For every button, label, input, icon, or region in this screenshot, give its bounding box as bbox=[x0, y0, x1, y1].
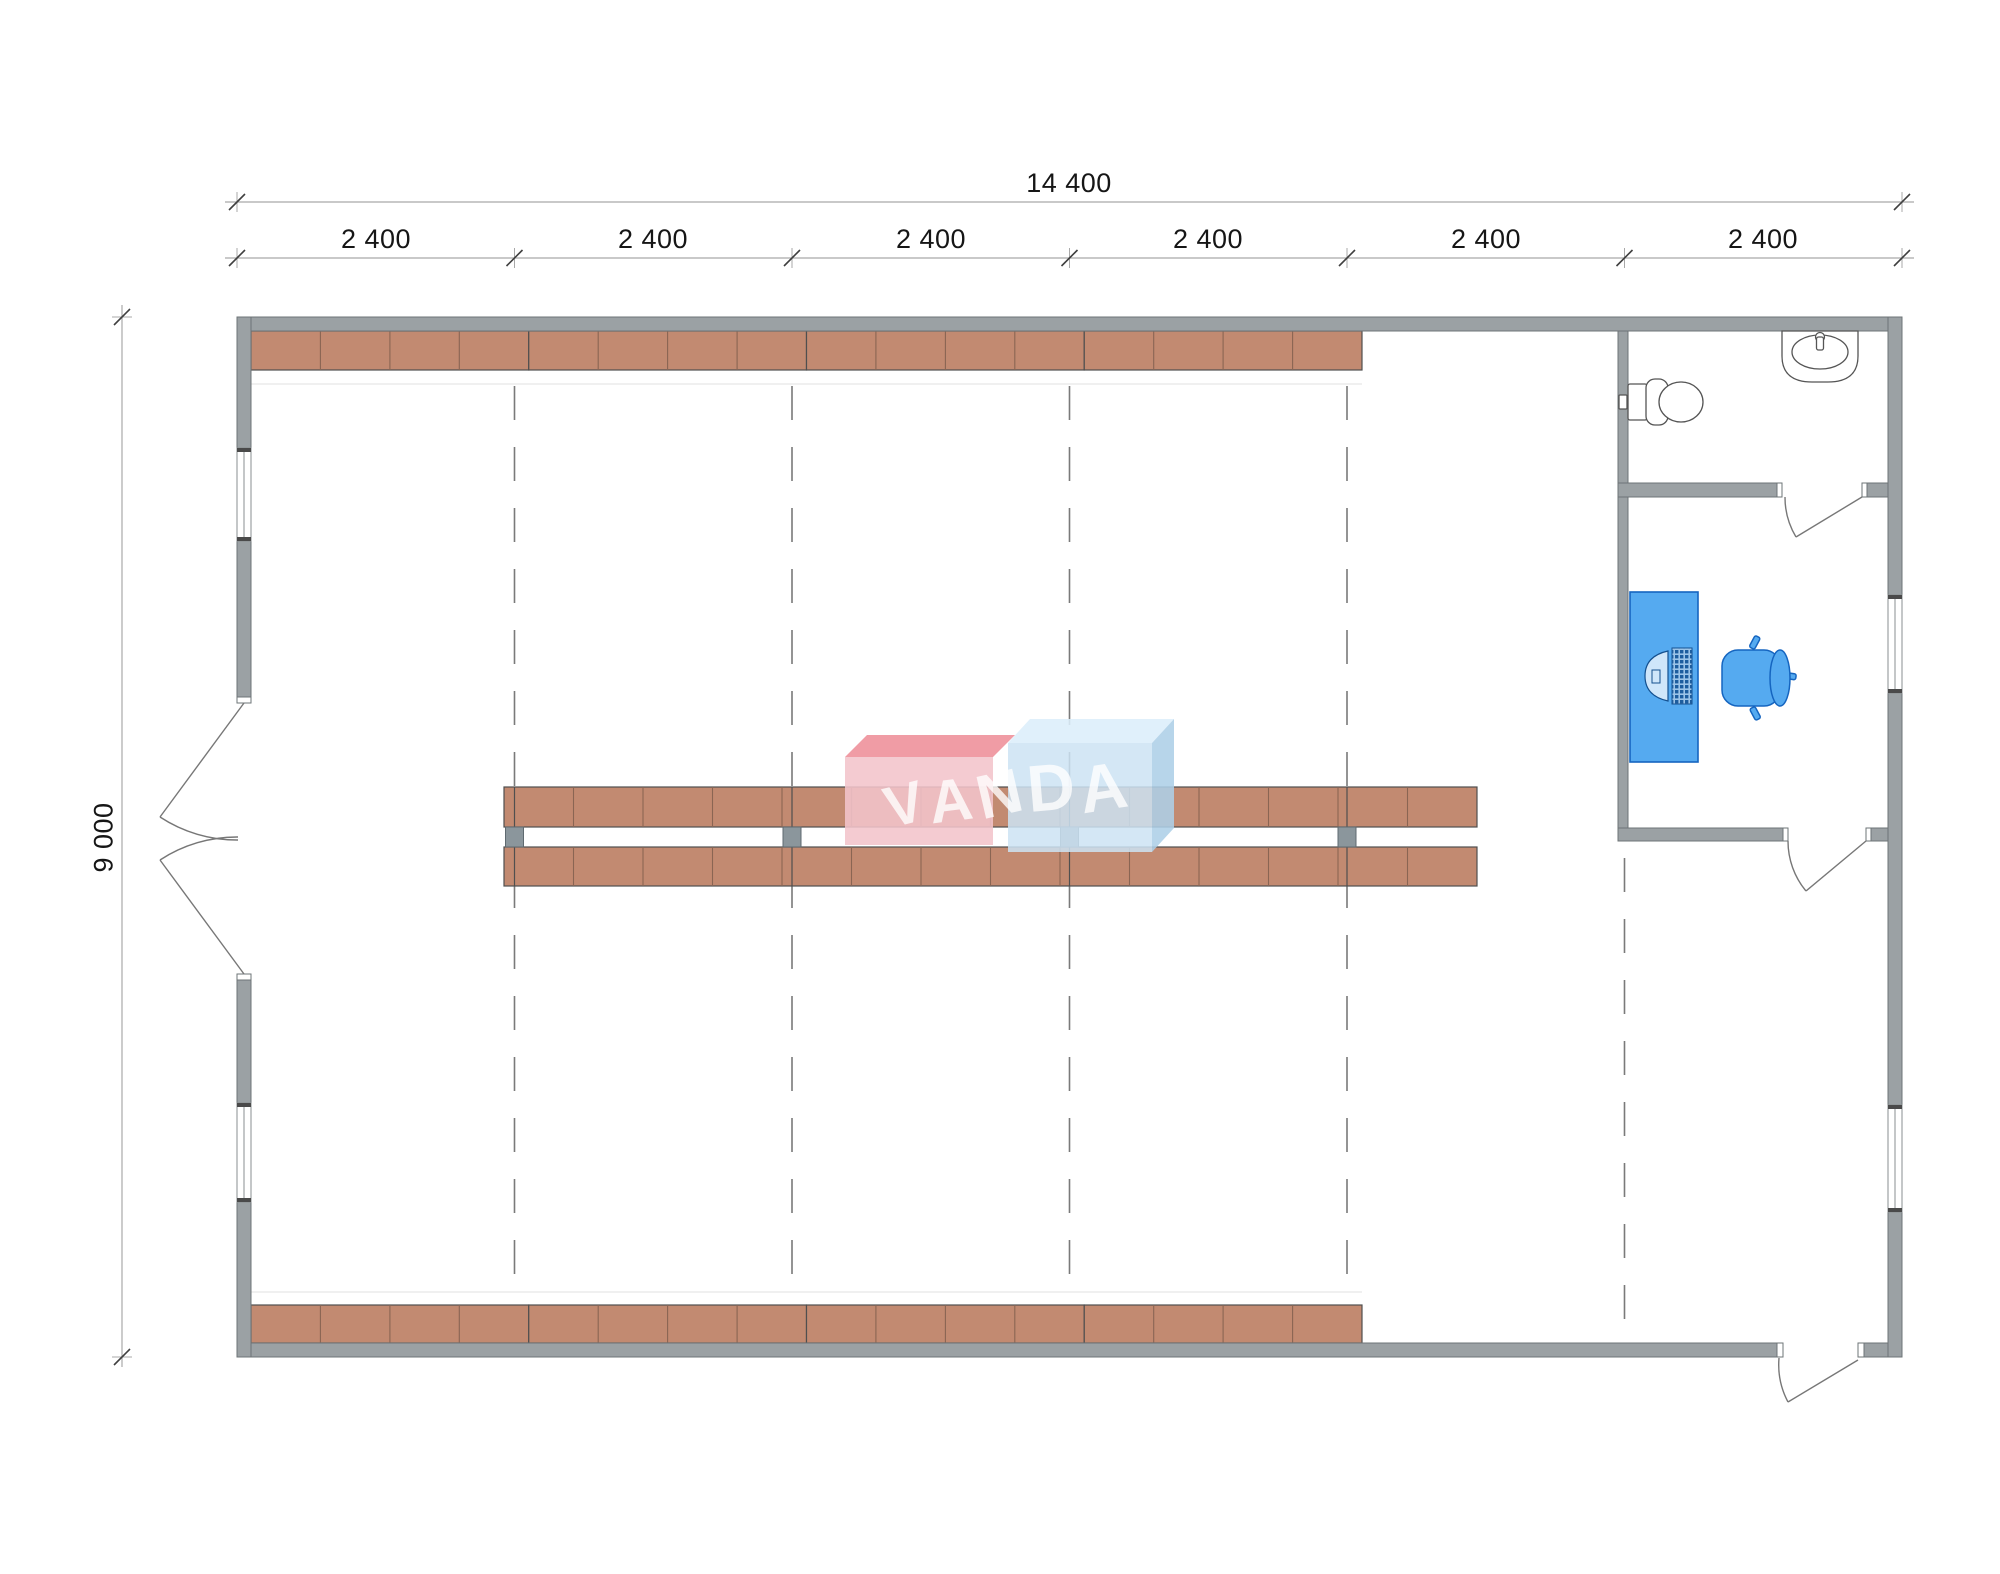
watermark-letter: D bbox=[1024, 752, 1077, 822]
bathroom-wall-right bbox=[1867, 483, 1888, 497]
dim-height-label: 9 000 bbox=[89, 738, 120, 938]
watermark-letter: A bbox=[925, 769, 975, 834]
main-double-door bbox=[160, 703, 244, 974]
right-wall-seg3 bbox=[1888, 1212, 1902, 1357]
bathroom-fixtures bbox=[1619, 331, 1858, 425]
office-chair bbox=[1722, 635, 1796, 720]
window-left-2 bbox=[237, 1103, 251, 1202]
office-door bbox=[1788, 841, 1866, 891]
dim-bay-label-5: 2 400 bbox=[1386, 224, 1586, 255]
window-right-2 bbox=[1888, 1105, 1902, 1212]
left-wall-seg1 bbox=[237, 317, 251, 448]
top-shelf-run bbox=[251, 331, 1362, 370]
office-wall-right bbox=[1871, 828, 1888, 841]
right-wall-seg1 bbox=[1888, 317, 1902, 595]
office-furniture bbox=[1630, 592, 1796, 762]
bathroom-door bbox=[1785, 497, 1862, 537]
office-wall-left bbox=[1618, 828, 1783, 841]
right-wall-seg2 bbox=[1888, 693, 1902, 1105]
rear-exit-door bbox=[1779, 1358, 1858, 1402]
vanda-watermark: V A N D A bbox=[830, 708, 1180, 860]
bottom-shelf-run bbox=[251, 1305, 1362, 1343]
bathroom-wall-left bbox=[1618, 483, 1777, 497]
watermark-text: V A N D A bbox=[856, 754, 1156, 820]
dim-total-width-label: 14 400 bbox=[969, 168, 1169, 199]
dim-bay-label-2: 2 400 bbox=[553, 224, 753, 255]
dim-bay-label-6: 2 400 bbox=[1663, 224, 1863, 255]
shelf-front-lines bbox=[251, 384, 1362, 1292]
left-wall-seg3 bbox=[237, 980, 251, 1103]
watermark-letter: A bbox=[1075, 751, 1132, 824]
dim-bay-label-4: 2 400 bbox=[1108, 224, 1308, 255]
dim-bay-label-1: 2 400 bbox=[276, 224, 476, 255]
left-wall-seg4 bbox=[237, 1202, 251, 1357]
floor-plan-canvas: 14 400 2 400 2 400 2 400 2 400 2 400 2 4… bbox=[0, 0, 2000, 1574]
watermark-letter: N bbox=[971, 760, 1029, 830]
window-right-1 bbox=[1888, 595, 1902, 693]
dim-bay-label-3: 2 400 bbox=[831, 224, 1031, 255]
window-left-1 bbox=[237, 448, 251, 541]
toilet-icon bbox=[1619, 379, 1703, 425]
doors bbox=[160, 497, 1866, 1402]
bottom-wall-left bbox=[237, 1343, 1777, 1357]
left-wall-seg2 bbox=[237, 541, 251, 697]
sink-icon bbox=[1782, 331, 1858, 382]
top-wall bbox=[237, 317, 1902, 331]
